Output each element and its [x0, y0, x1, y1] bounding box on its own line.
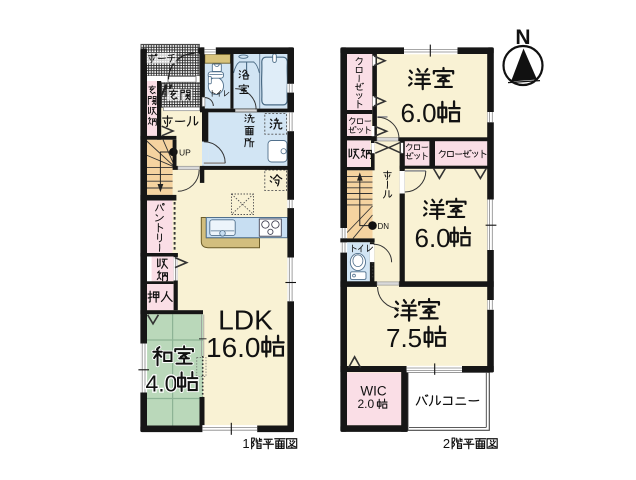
svg-text:1: 1 [242, 436, 249, 451]
svg-text:UP: UP [179, 147, 191, 157]
svg-text:7.5: 7.5 [386, 323, 422, 353]
svg-text:16.0: 16.0 [206, 332, 261, 363]
svg-text:2.0: 2.0 [358, 397, 375, 411]
svg-text:4.0: 4.0 [146, 370, 178, 396]
svg-text:6.0: 6.0 [401, 98, 437, 128]
svg-text:2: 2 [443, 436, 450, 451]
svg-text:DN: DN [378, 222, 390, 231]
svg-text:N: N [515, 26, 530, 49]
svg-text:LDK: LDK [218, 304, 273, 336]
svg-text:6.0: 6.0 [415, 223, 451, 253]
